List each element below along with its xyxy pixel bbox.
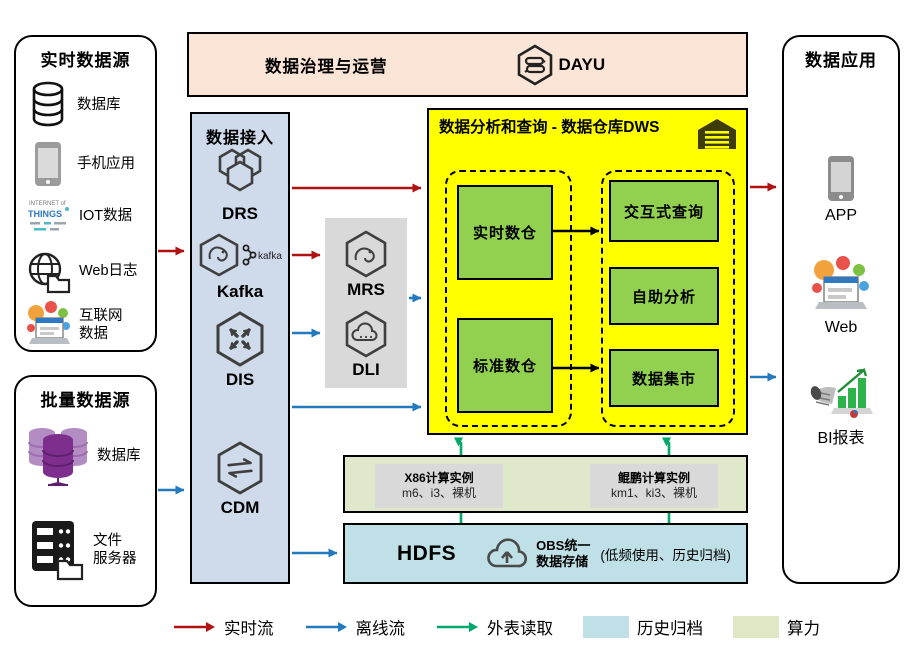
source-item-batch-database: 数据库 <box>26 421 151 491</box>
panel-data-ingest-title: 数据接入 <box>192 124 288 148</box>
ingest-item-cdm: CDM <box>192 440 288 518</box>
dws-node-data-mart: 数据集市 <box>609 349 719 407</box>
panel-batch-sources: 批量数据源 数据库 <box>14 375 157 607</box>
source-item-label: 数据库 <box>77 96 121 114</box>
legend-item-offline-flow: 离线流 <box>304 615 406 639</box>
architecture-diagram: 实时数据源 数据库 手机应用 INTERNET of THINGS <box>0 0 914 651</box>
legend-label: 历史归档 <box>637 615 703 639</box>
legend-item-external-read: 外表读取 <box>435 615 553 639</box>
ingest-item-dis: DIS <box>192 310 288 390</box>
panel-batch-sources-title: 批量数据源 <box>16 386 155 411</box>
legend-arrow-blue-icon <box>304 620 348 634</box>
panel-data-apps-title: 数据应用 <box>784 46 898 71</box>
ingest-item-label: Kafka <box>217 282 263 302</box>
phone-icon <box>26 140 70 188</box>
dws-node-label: 自助分析 <box>632 286 696 307</box>
source-item-database: 数据库 <box>26 79 151 131</box>
dws-node-label: 实时数仓 <box>473 222 537 243</box>
storage-note: (低频使用、历史归档) <box>600 544 731 564</box>
dli-icon <box>341 310 391 358</box>
compute-instance-detail: km1、ki3、裸机 <box>611 486 697 501</box>
dws-node-self-service-analysis: 自助分析 <box>609 267 719 325</box>
source-item-label: IOT数据 <box>79 207 132 225</box>
kafka-icon: kafka <box>192 232 288 280</box>
source-item-label: 互联网 数据 <box>79 307 123 343</box>
banner-data-governance: 数据治理与运营 DAYU <box>187 32 748 97</box>
dws-node-standard-warehouse: 标准数仓 <box>457 318 553 413</box>
internet-icon <box>26 300 72 350</box>
app-item-web: Web <box>784 255 898 337</box>
obs-label: OBS统一 数据存储 <box>536 538 590 569</box>
legend-arrow-green-icon <box>435 620 479 634</box>
legend-item-realtime-flow: 实时流 <box>172 615 274 639</box>
dis-icon <box>211 310 269 368</box>
legend-swatch-green <box>733 616 779 638</box>
legend: 实时流 离线流 外表读取 历史归档 算力 <box>172 612 820 642</box>
web-icon <box>810 255 872 315</box>
source-item-internet: 互联网 数据 <box>26 299 151 351</box>
dws-node-label: 标准数仓 <box>473 355 537 376</box>
svg-text:THINGS: THINGS <box>28 209 62 219</box>
processing-item-label: MRS <box>347 280 385 300</box>
source-item-weblog: Web日志 <box>26 245 151 297</box>
drs-icon <box>211 146 269 202</box>
source-item-label: 手机应用 <box>77 155 135 173</box>
bi-report-icon <box>808 362 874 420</box>
ingest-item-label: DIS <box>226 370 254 390</box>
banner-product: DAYU <box>516 44 606 86</box>
compute-instance-title: 鲲鹏计算实例 <box>618 471 690 486</box>
app-item-label: BI报表 <box>817 424 864 448</box>
dws-node-label: 交互式查询 <box>624 201 704 222</box>
banner-title: 数据治理与运营 <box>265 53 388 77</box>
ingest-item-kafka: kafka Kafka <box>192 232 288 302</box>
legend-label: 实时流 <box>224 615 274 639</box>
source-item-label: 数据库 <box>97 447 141 465</box>
dws-node-realtime-warehouse: 实时数仓 <box>457 185 553 280</box>
warehouse-icon <box>696 117 738 151</box>
svg-text:INTERNET of: INTERNET of <box>29 201 66 207</box>
source-item-label: Web日志 <box>79 262 138 280</box>
cdm-icon <box>212 440 268 496</box>
source-item-file-server: 文件 服务器 <box>26 515 151 585</box>
iot-icon: INTERNET of THINGS <box>26 195 72 237</box>
legend-swatch-blue <box>583 616 629 638</box>
compute-instance-title: X86计算实例 <box>404 471 473 486</box>
source-item-iot: INTERNET of THINGS IOT数据 <box>26 194 151 238</box>
hdfs-label: HDFS <box>397 542 456 566</box>
app-item-bi: BI报表 <box>784 362 898 448</box>
processing-item-dli: DLI <box>325 310 407 380</box>
ingest-item-label: CDM <box>221 498 260 518</box>
legend-item-archive: 历史归档 <box>583 615 703 639</box>
legend-label: 外表读取 <box>487 615 553 639</box>
legend-label: 算力 <box>787 615 820 639</box>
source-item-phone: 手机应用 <box>26 139 151 189</box>
app-item-label: Web <box>825 319 858 337</box>
app-item-app: APP <box>784 155 898 225</box>
compute-instance-kunpeng: 鲲鹏计算实例 km1、ki3、裸机 <box>590 464 718 508</box>
legend-arrow-red-icon <box>172 620 216 634</box>
dws-node-interactive-query: 交互式查询 <box>609 180 719 242</box>
source-item-label: 文件 服务器 <box>93 532 137 568</box>
app-phone-icon <box>825 155 857 203</box>
obs-cloud-upload-icon <box>484 536 532 572</box>
database-cluster-icon <box>26 423 90 489</box>
database-icon <box>26 80 70 130</box>
weblog-icon <box>26 246 72 296</box>
legend-label: 离线流 <box>356 615 406 639</box>
compute-instance-detail: m6、i3、裸机 <box>402 486 476 501</box>
panel-dws-title: 数据分析和查询 - 数据仓库DWS <box>439 119 699 137</box>
panel-storage: HDFS OBS统一 数据存储 (低频使用、历史归档) <box>343 523 748 584</box>
legend-item-compute: 算力 <box>733 615 820 639</box>
svg-text:kafka: kafka <box>258 251 282 262</box>
app-item-label: APP <box>825 207 857 225</box>
file-server-icon <box>26 519 86 581</box>
banner-product-name: DAYU <box>559 55 606 75</box>
panel-data-ingest: 数据接入 DRS kafka Kafka <box>190 112 290 584</box>
panel-compute: X86计算实例 m6、i3、裸机 鲲鹏计算实例 km1、ki3、裸机 <box>343 455 748 513</box>
processing-item-mrs: MRS <box>325 230 407 300</box>
mrs-icon <box>341 230 391 278</box>
compute-instance-x86: X86计算实例 m6、i3、裸机 <box>375 464 503 508</box>
dayu-icon <box>516 44 554 86</box>
processing-item-label: DLI <box>352 360 379 380</box>
dws-node-label: 数据集市 <box>632 368 696 389</box>
panel-processing: MRS DLI <box>325 218 407 388</box>
ingest-item-label: DRS <box>222 204 258 224</box>
panel-realtime-sources-title: 实时数据源 <box>16 46 155 71</box>
panel-realtime-sources: 实时数据源 数据库 手机应用 INTERNET of THINGS <box>14 35 157 352</box>
ingest-item-drs: DRS <box>192 146 288 224</box>
panel-dws: 数据分析和查询 - 数据仓库DWS 实时数仓 标准数仓 交互式查询 自助分析 数… <box>427 108 748 435</box>
panel-data-apps: 数据应用 APP Web <box>782 35 900 584</box>
